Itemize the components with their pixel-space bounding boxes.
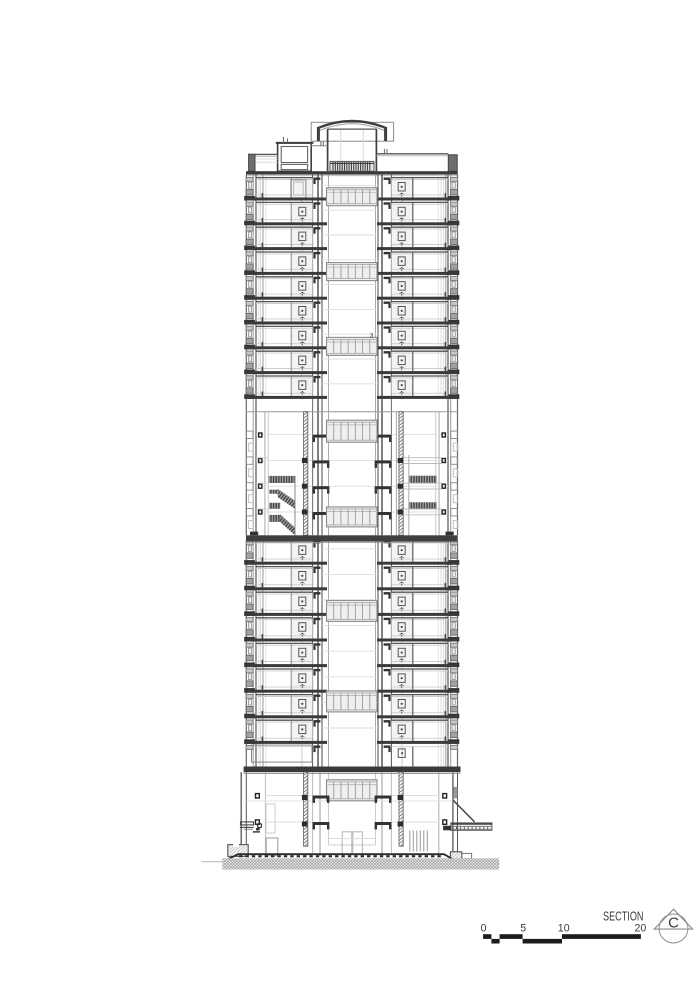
svg-text:SECTION: SECTION xyxy=(603,909,644,924)
svg-text:10: 10 xyxy=(558,923,570,935)
svg-text:0: 0 xyxy=(481,923,487,935)
svg-text:5: 5 xyxy=(520,923,526,935)
svg-text:C: C xyxy=(668,915,679,932)
svg-text:3: 3 xyxy=(370,333,374,340)
svg-text:20: 20 xyxy=(635,923,647,935)
